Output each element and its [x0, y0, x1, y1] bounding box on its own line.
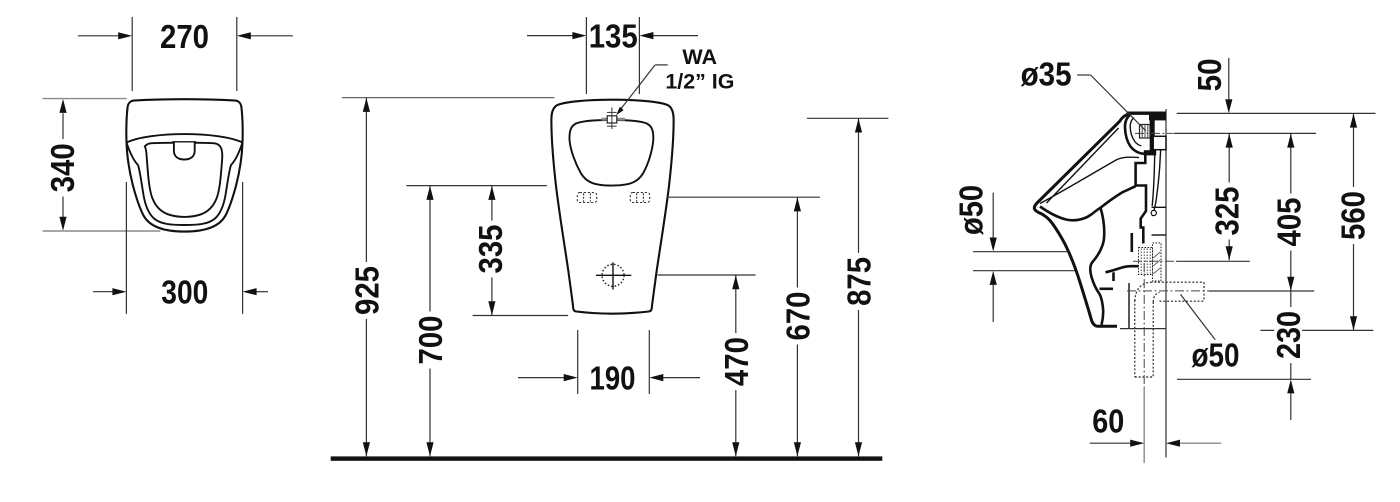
svg-text:325: 325	[1209, 187, 1246, 236]
svg-text:335: 335	[472, 225, 509, 274]
svg-text:190: 190	[590, 360, 636, 397]
svg-text:230: 230	[1270, 311, 1307, 359]
svg-text:340: 340	[44, 143, 81, 192]
svg-text:700: 700	[412, 316, 449, 365]
svg-text:925: 925	[348, 266, 385, 315]
svg-text:135: 135	[589, 18, 638, 55]
svg-text:1/2” IG: 1/2” IG	[665, 69, 734, 93]
svg-text:560: 560	[1334, 191, 1371, 240]
svg-text:WA: WA	[682, 45, 717, 69]
svg-text:405: 405	[1270, 198, 1307, 247]
svg-text:ø50: ø50	[952, 185, 989, 235]
svg-text:670: 670	[779, 292, 816, 341]
svg-text:470: 470	[718, 337, 755, 386]
svg-text:300: 300	[161, 274, 208, 311]
svg-text:ø35: ø35	[1021, 56, 1072, 93]
svg-text:60: 60	[1092, 403, 1124, 440]
svg-text:50: 50	[1191, 58, 1228, 91]
svg-text:270: 270	[160, 18, 209, 55]
svg-text:875: 875	[841, 257, 878, 306]
svg-text:ø50: ø50	[1192, 337, 1240, 374]
